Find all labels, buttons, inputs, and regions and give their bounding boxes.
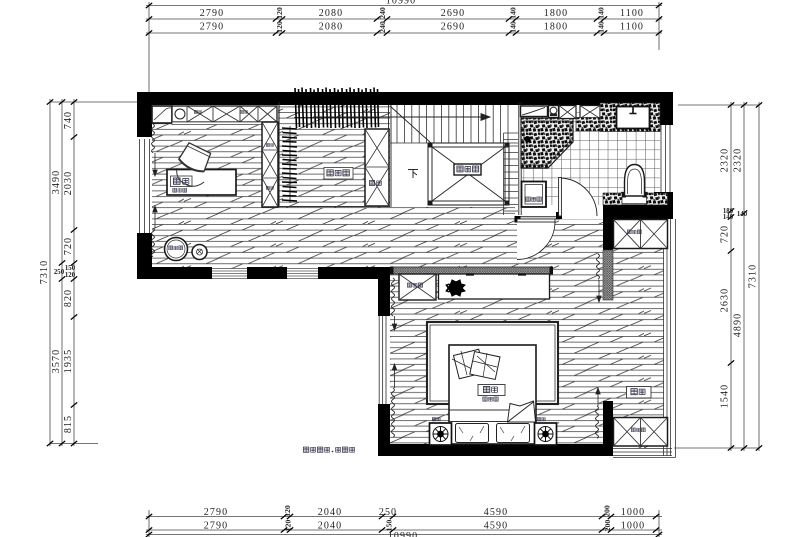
- svg-text:150: 150: [65, 265, 76, 272]
- svg-text:250: 250: [54, 269, 65, 276]
- svg-text:3570: 3570: [51, 349, 62, 373]
- svg-text:4890: 4890: [733, 313, 744, 337]
- svg-text:3490: 3490: [51, 170, 62, 194]
- svg-text:740: 740: [63, 111, 74, 129]
- svg-text:2790: 2790: [204, 507, 228, 518]
- svg-text:7310: 7310: [39, 260, 50, 284]
- svg-text:140: 140: [737, 211, 748, 218]
- svg-text:820: 820: [63, 289, 74, 307]
- svg-text:1540: 1540: [720, 384, 731, 408]
- svg-text:1100: 1100: [620, 22, 644, 33]
- svg-text:2080: 2080: [319, 22, 343, 33]
- svg-text:2080: 2080: [319, 8, 343, 19]
- svg-text:250: 250: [379, 507, 397, 518]
- svg-text:140: 140: [723, 214, 734, 221]
- svg-text:4590: 4590: [484, 520, 508, 531]
- svg-text:4590: 4590: [484, 507, 508, 518]
- svg-text:140: 140: [597, 21, 606, 33]
- svg-text:240: 240: [378, 7, 387, 19]
- svg-text:140: 140: [597, 7, 606, 19]
- svg-text:240: 240: [378, 21, 387, 33]
- svg-text:2320: 2320: [720, 148, 731, 172]
- svg-text:1100: 1100: [620, 8, 644, 19]
- svg-text:120: 120: [275, 7, 284, 19]
- svg-text:1800: 1800: [544, 8, 568, 19]
- svg-text:2790: 2790: [200, 22, 224, 33]
- svg-text:120: 120: [275, 21, 284, 33]
- svg-text:10990: 10990: [386, 0, 417, 7]
- svg-text:200: 200: [603, 505, 612, 517]
- svg-text:7310: 7310: [748, 264, 759, 288]
- svg-text:2030: 2030: [63, 171, 74, 195]
- svg-text:200: 200: [603, 520, 612, 532]
- svg-text:120: 120: [284, 520, 293, 532]
- svg-text:1000: 1000: [621, 520, 645, 531]
- svg-text:120: 120: [283, 505, 292, 517]
- svg-text:120: 120: [65, 272, 76, 279]
- svg-text:10990: 10990: [388, 531, 419, 537]
- svg-text:2320: 2320: [733, 148, 744, 172]
- svg-text:2630: 2630: [720, 288, 731, 312]
- svg-text:1935: 1935: [63, 349, 74, 373]
- svg-text:140: 140: [509, 21, 518, 33]
- svg-text:2040: 2040: [318, 520, 342, 531]
- svg-text:140: 140: [509, 7, 518, 19]
- svg-text:720: 720: [63, 237, 74, 255]
- svg-text:1000: 1000: [621, 507, 645, 518]
- svg-text:1800: 1800: [544, 22, 568, 33]
- svg-text:2040: 2040: [318, 507, 342, 518]
- svg-text:2690: 2690: [441, 22, 465, 33]
- svg-text:2790: 2790: [204, 520, 228, 531]
- svg-text:720: 720: [720, 225, 731, 243]
- svg-text:2790: 2790: [200, 8, 224, 19]
- svg-text:150: 150: [385, 520, 394, 532]
- svg-text:815: 815: [63, 415, 74, 433]
- svg-text:2690: 2690: [441, 8, 465, 19]
